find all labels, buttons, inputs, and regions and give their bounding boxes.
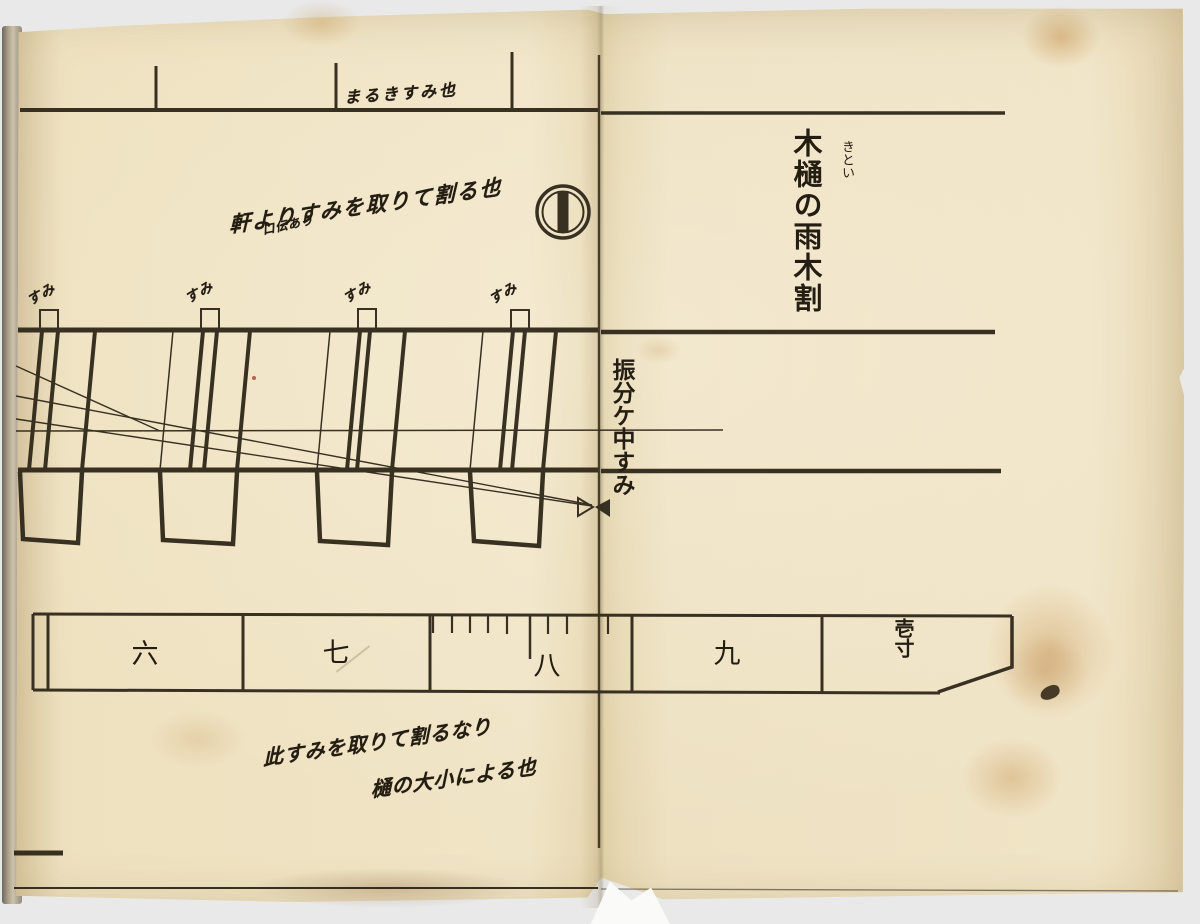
scale-label-9: 九: [707, 632, 747, 671]
construction-lines: [16, 366, 592, 506]
scale-label-6: 六: [125, 632, 165, 671]
circle-bar-mark: [537, 186, 589, 238]
scale-label-8: 八: [527, 644, 567, 683]
scale-label-7: 七: [316, 631, 356, 670]
page-title: 木樋の雨木割: [784, 128, 826, 328]
scale-label-1sun: 壱寸: [888, 618, 917, 686]
plank-diagram: [20, 309, 556, 546]
frame-rules: [14, 52, 1178, 891]
woodblock-linework: [0, 0, 1200, 924]
scale-ticks: [433, 615, 608, 634]
scale-bar: [33, 614, 1012, 693]
page-title-furigana: きとい: [838, 140, 857, 210]
plank-tails: [20, 472, 543, 546]
fold-label: 振分ケ中すみ: [604, 358, 638, 533]
book-spread-scan: 木樋の雨木割 きとい 振分ケ中すみ 六 七 八 九 壱寸 すみ すみ すみ すみ…: [0, 0, 1200, 924]
